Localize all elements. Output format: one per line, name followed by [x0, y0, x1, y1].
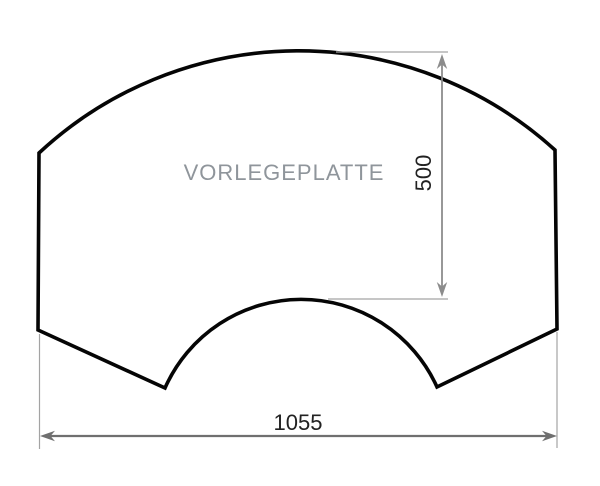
width-dimension-value: 1055: [274, 410, 323, 435]
width-dimension: 1055: [40, 332, 558, 449]
height-dimension-value: 500: [411, 155, 436, 192]
plate-outline: [38, 51, 557, 388]
drawing-canvas: 500 1055 VORLEGEPLATTE: [0, 0, 600, 486]
part-label: VORLEGEPLATTE: [184, 160, 385, 185]
technical-drawing: 500 1055 VORLEGEPLATTE: [0, 0, 600, 486]
